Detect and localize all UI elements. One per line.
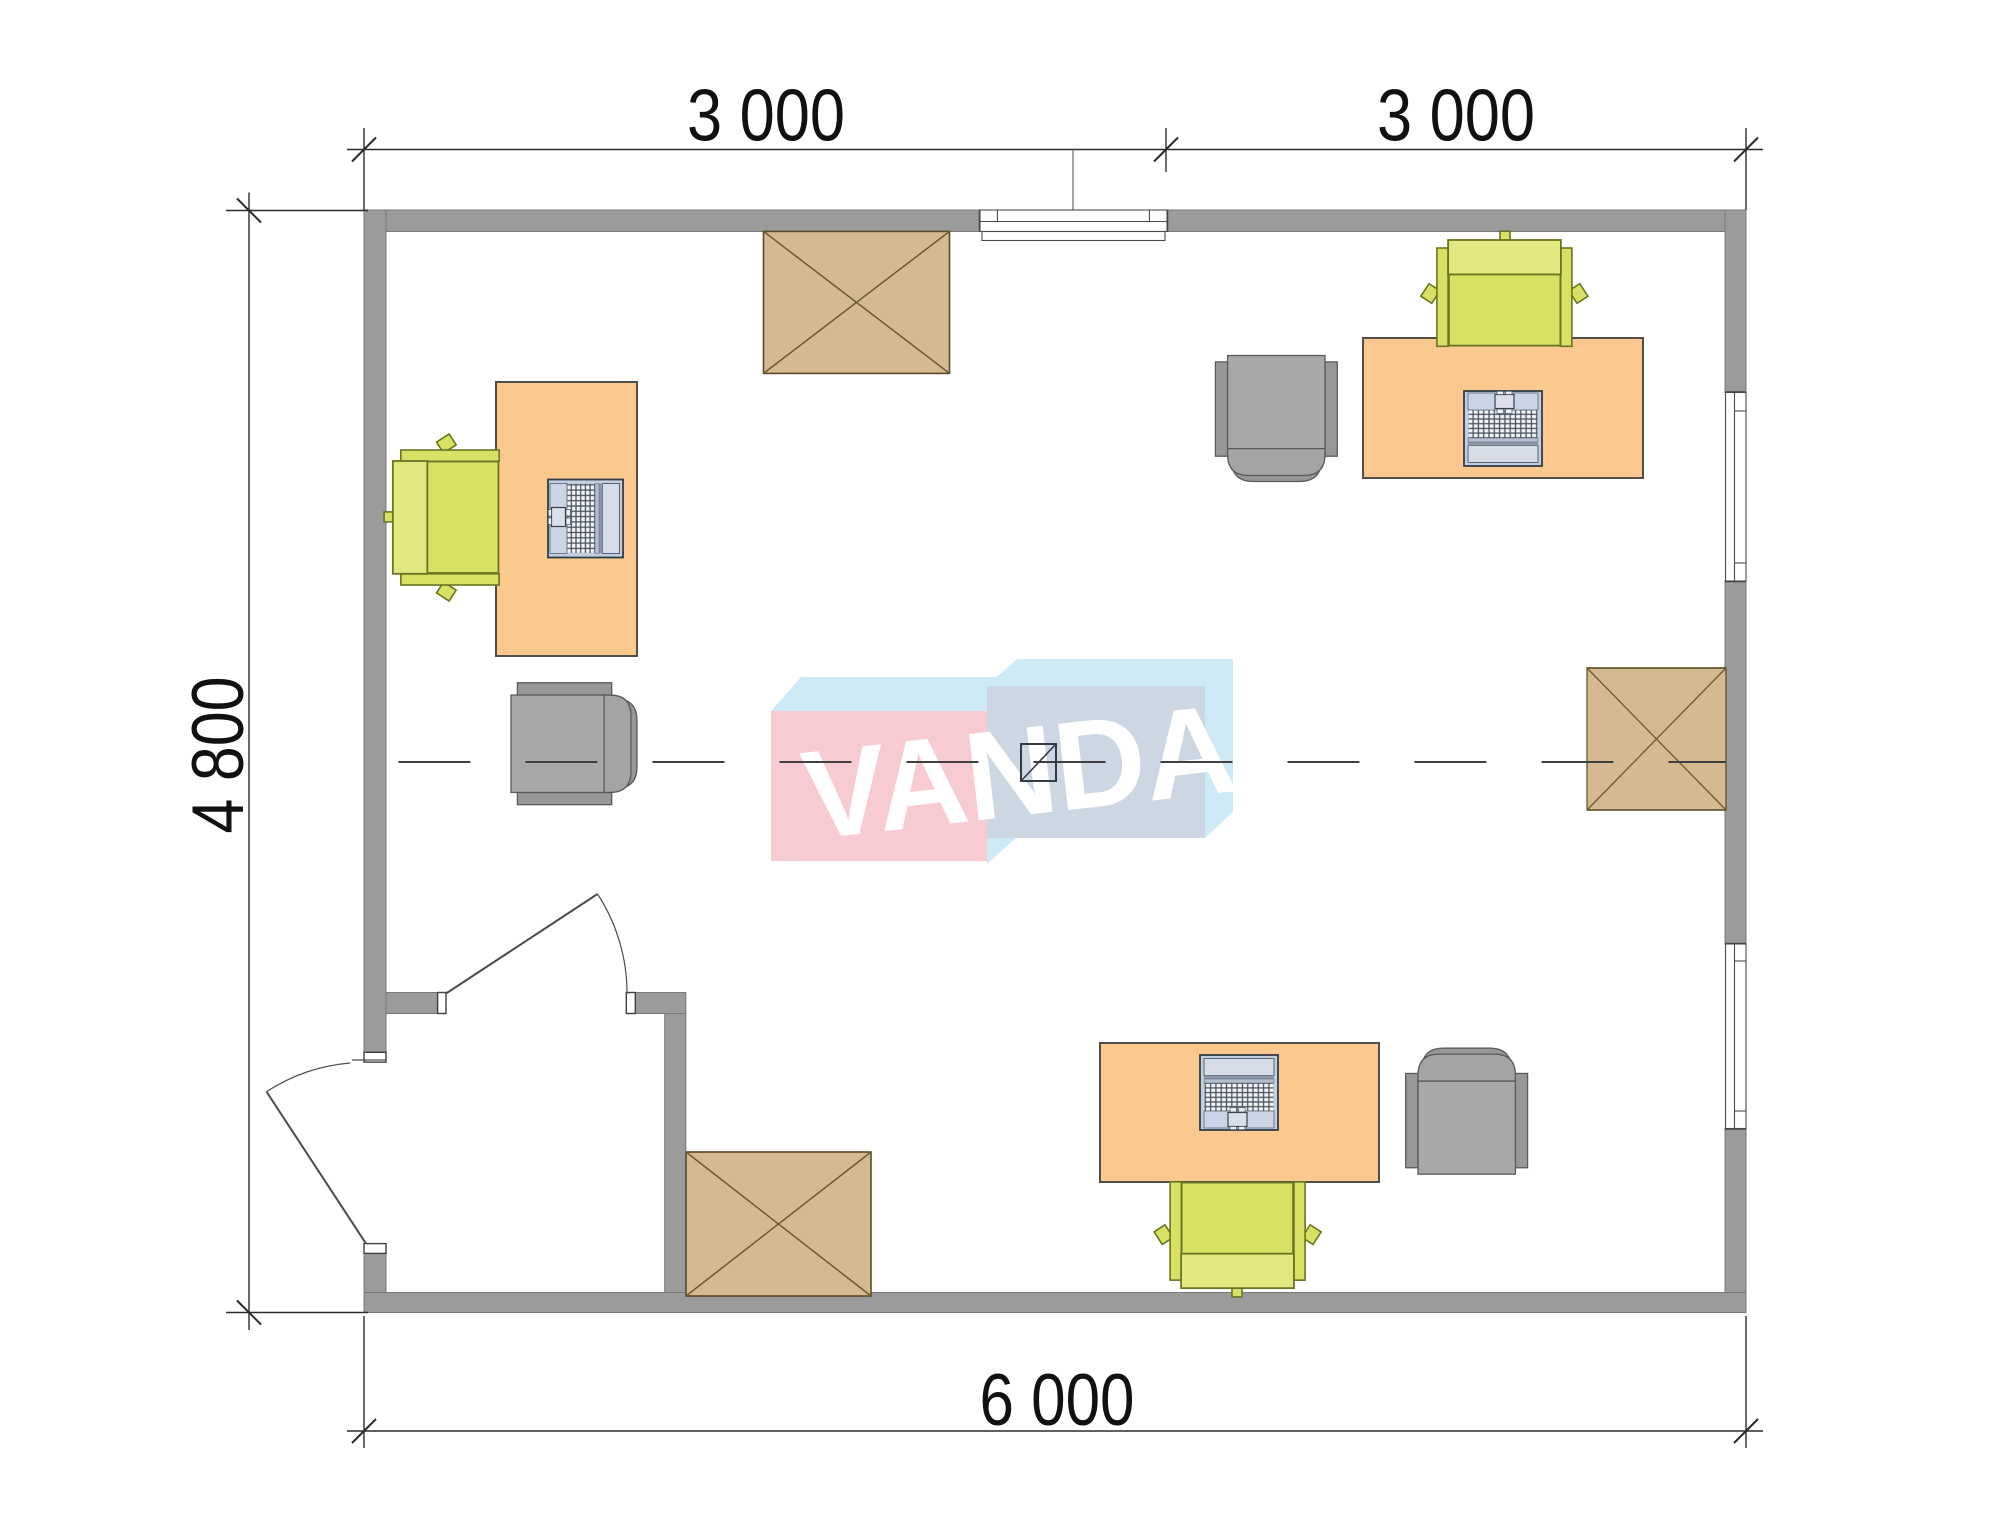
svg-text:4 800: 4 800 [178, 677, 259, 834]
svg-text:3 000: 3 000 [687, 76, 845, 157]
svg-text:3 000: 3 000 [1377, 76, 1535, 157]
svg-text:6 000: 6 000 [980, 1360, 1135, 1441]
